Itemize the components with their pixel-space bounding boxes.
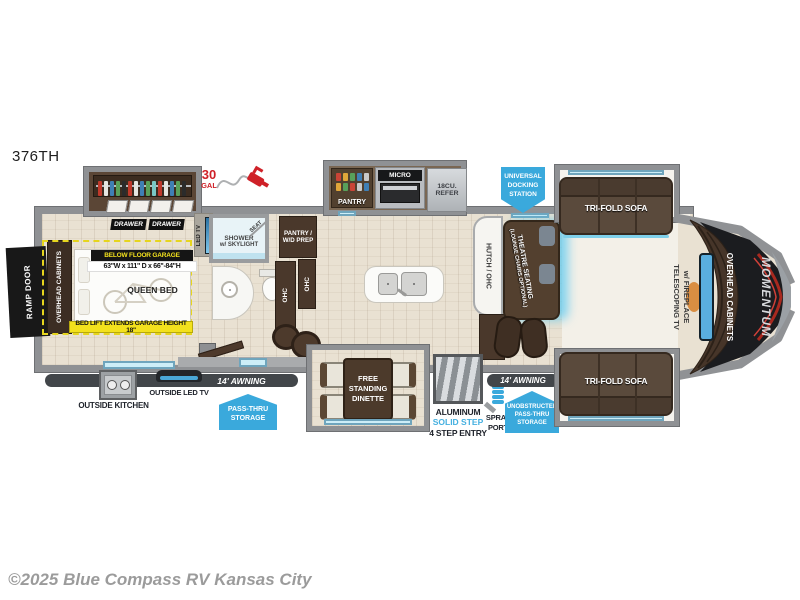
dinette-chair (390, 394, 416, 420)
entry-steps (433, 354, 483, 404)
wardrobe-slide (84, 167, 201, 216)
tri-fold-sofa-top: TRI-FOLD SOFA (559, 177, 673, 235)
kitchen-island (364, 266, 444, 303)
floorplan-screenshot: 376TH RAMP DOOR OVERHEAD CABINETS BELOW … (0, 0, 800, 600)
drawer-face (172, 200, 194, 213)
shower-label: SHOWER w/ SKYLIGHT (213, 230, 265, 252)
bed-lift-label: BED LIFT EXTENDS GARAGE HEIGHT 18" (69, 321, 193, 333)
bedroom-led-tv-label: LED TV (193, 216, 204, 256)
pass-thru-storage-badge: PASS-THRU STORAGE (219, 394, 277, 430)
queen-bed-label: QUEEN BED (110, 284, 195, 296)
kitchen-pantry: PANTRY (331, 168, 373, 208)
unobstructed-pass-thru-badge: UNOBSTRUCTED PASS-THRU STORAGE (505, 391, 559, 433)
below-floor-garage-label: BELOW FLOOR GARAGE (91, 250, 193, 261)
dinette-table: FREE STANDING DINETTE (343, 358, 393, 420)
pantry-wd-prep: PANTRY / W/D PREP (279, 216, 317, 258)
drawer-face (106, 200, 128, 213)
window (324, 419, 412, 425)
microwave: MICRO (378, 170, 422, 181)
window (568, 170, 664, 175)
pillow (78, 289, 90, 315)
kitchen-slide: PANTRY MICRO 18CU. REFER (324, 161, 466, 215)
fuel-pump-icon (215, 158, 275, 200)
copyright: ©2025 Blue Compass RV Kansas City (8, 570, 312, 590)
drawer-label: DRAWER (110, 219, 147, 230)
outside-kitchen (99, 370, 137, 400)
outside-kitchen-label: OUTSIDE KITCHEN (66, 400, 161, 411)
window (103, 361, 175, 369)
cap-overhead-cabinets-label: OVERHEAD CABINETS (725, 253, 734, 342)
drawer-face (128, 200, 150, 213)
window (568, 416, 664, 421)
window (338, 211, 356, 216)
shower: SHOWER w/ SKYLIGHT SEAT (209, 214, 269, 263)
spray-port-icon (492, 385, 506, 409)
pantry-label: PANTRY (332, 199, 372, 206)
awning-right-label: 14' AWNING (487, 374, 559, 387)
bath-sink (221, 281, 238, 298)
outside-led-tv (156, 370, 202, 382)
momentum-logo: MOMENTUM (759, 257, 773, 337)
tri-fold-sofa-bottom: TRI-FOLD SOFA (559, 352, 673, 416)
refrigerator: 18CU. REFER (427, 168, 467, 212)
fireplace-label: w/ FIREPLACE (682, 270, 691, 324)
drawer-face (150, 200, 172, 213)
range-oven (380, 183, 420, 203)
micro-range: MICRO (375, 167, 425, 209)
sink-basin (378, 273, 398, 295)
front-cap: TELESCOPING TV w/ FIREPLACE OVERHEAD CAB… (660, 192, 800, 402)
recliner-footrest (519, 317, 549, 359)
awning-left-label: 14' AWNING (203, 374, 280, 387)
window (239, 358, 267, 367)
dinette-chair (390, 362, 416, 388)
telescoping-tv-label: TELESCOPING TV (672, 264, 681, 329)
ramp-door-label: RAMP DOOR (22, 265, 34, 320)
drawer-label: DRAWER (148, 219, 185, 230)
wardrobe-closet (93, 175, 192, 197)
model-number: 376TH (12, 148, 60, 165)
garage-dimensions: 63"W x 111" D x 66"-84"H (87, 261, 197, 272)
ohc-cabinet: OHC (275, 261, 296, 329)
ohc-cabinet: OHC (298, 259, 316, 309)
outside-led-tv-label: OUTSIDE LED TV (146, 387, 212, 397)
